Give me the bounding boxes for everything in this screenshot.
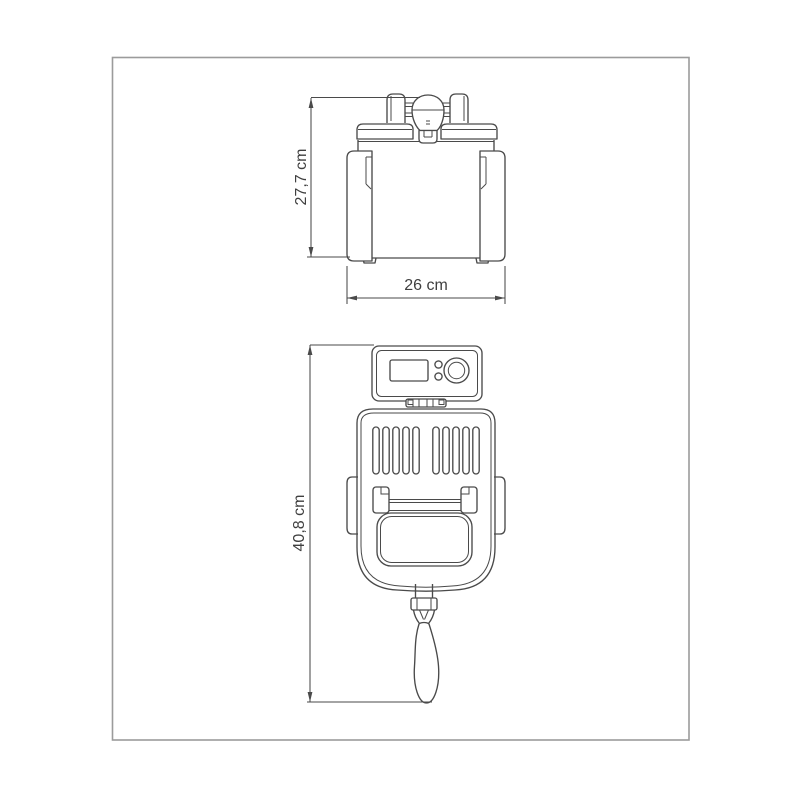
basket-handle-fork-inner: [420, 610, 429, 620]
drawing-border: [113, 58, 690, 741]
lid-left-half: [357, 124, 413, 139]
vent-slot: [453, 427, 459, 474]
lid-window-inner: [381, 517, 469, 563]
control-panel-inner: [377, 351, 478, 397]
height-dimension-label: 27,7 cm: [293, 149, 310, 206]
basket-handle-grip: [414, 623, 438, 704]
indicator-light-top: [435, 361, 442, 368]
vent-slot: [443, 427, 449, 474]
vent-slot: [383, 427, 389, 474]
lid-window-outer: [377, 513, 472, 566]
lid-right-half: [441, 124, 497, 139]
temperature-knob-inner: [448, 362, 464, 378]
vent-slot: [433, 427, 439, 474]
lid-handle-left-post: [387, 94, 405, 123]
length-dimension-label: 40,8 cm: [291, 495, 308, 552]
lid-handle-right-post: [450, 94, 468, 123]
display-screen: [390, 360, 428, 381]
front-view: [347, 94, 505, 263]
width-dimension-label: 26 cm: [404, 277, 448, 294]
fryer-body-outline: [358, 140, 494, 258]
vent-slot: [393, 427, 399, 474]
top-view: [347, 346, 505, 703]
vent-slot: [463, 427, 469, 474]
vent-slot: [373, 427, 379, 474]
right-side-handle: [480, 151, 505, 261]
dimension-drawing: 27,7 cm 26 cm: [0, 0, 800, 800]
indicator-light-bottom: [435, 373, 442, 380]
control-panel: [372, 346, 482, 401]
basket-handle-fork: [414, 610, 435, 624]
left-side-handle: [347, 151, 372, 261]
fold-handle-bar: [389, 500, 461, 511]
temperature-knob: [444, 358, 469, 383]
vent-slots: [373, 427, 479, 474]
vent-slot: [413, 427, 419, 474]
basket-handle-crossbar: [411, 598, 437, 610]
lid-knob: [412, 95, 444, 131]
vent-slot: [473, 427, 479, 474]
front-width-dimension: 26 cm: [347, 266, 505, 304]
drawing-canvas: 27,7 cm 26 cm: [0, 0, 800, 800]
vent-slot: [403, 427, 409, 474]
